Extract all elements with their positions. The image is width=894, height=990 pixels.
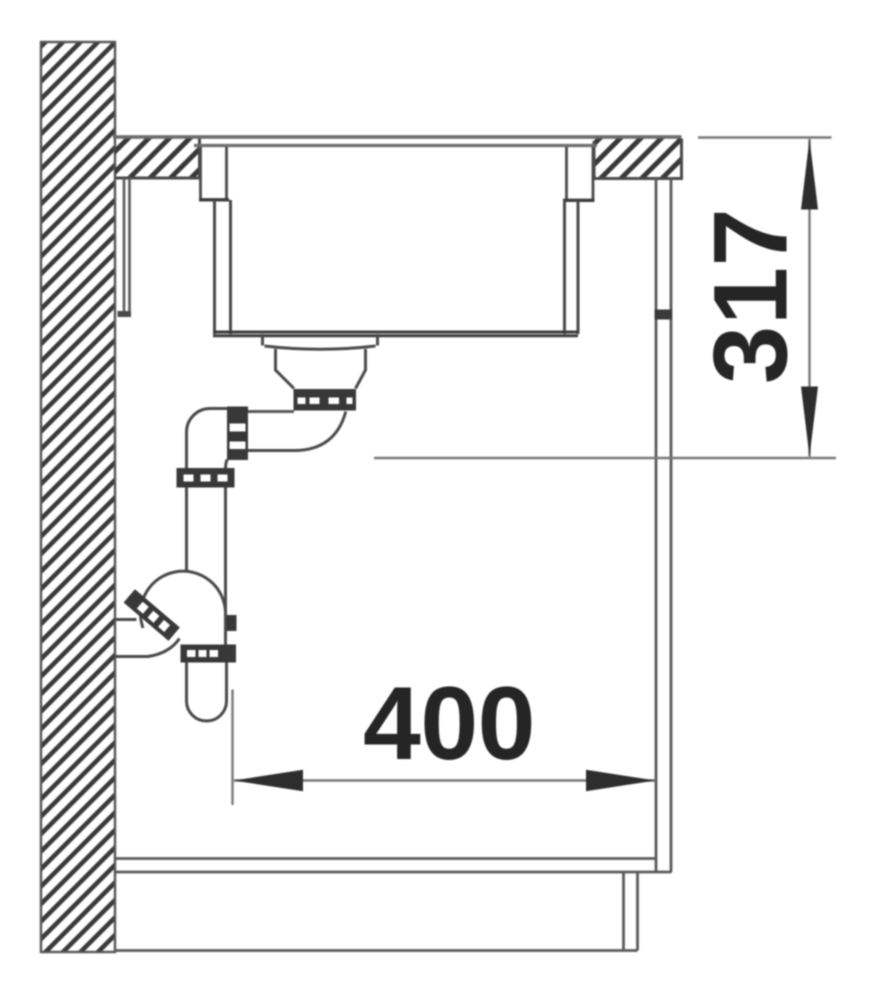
svg-text:400: 400	[363, 666, 535, 782]
svg-text:317: 317	[693, 208, 810, 384]
